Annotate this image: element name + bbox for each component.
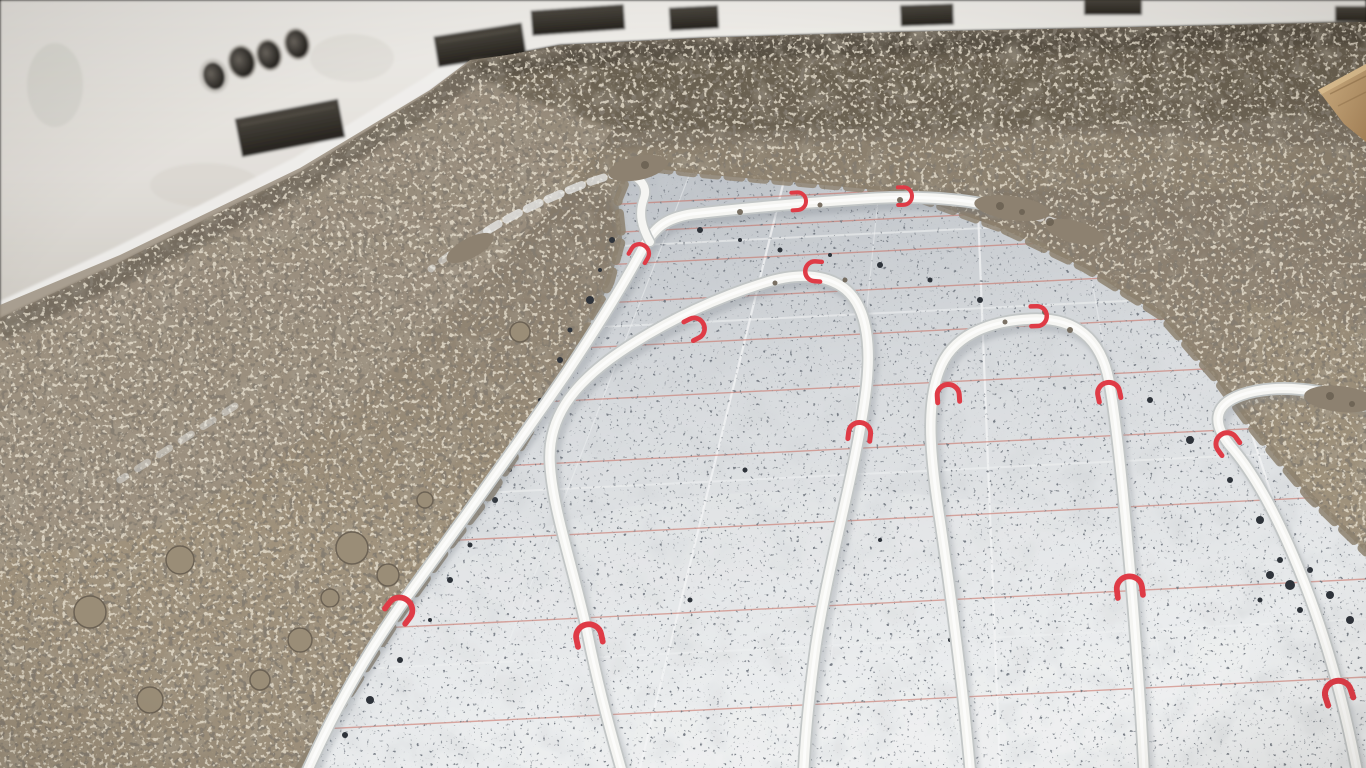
photo-underfloor-heating (0, 0, 1366, 768)
vignette (0, 0, 1366, 768)
